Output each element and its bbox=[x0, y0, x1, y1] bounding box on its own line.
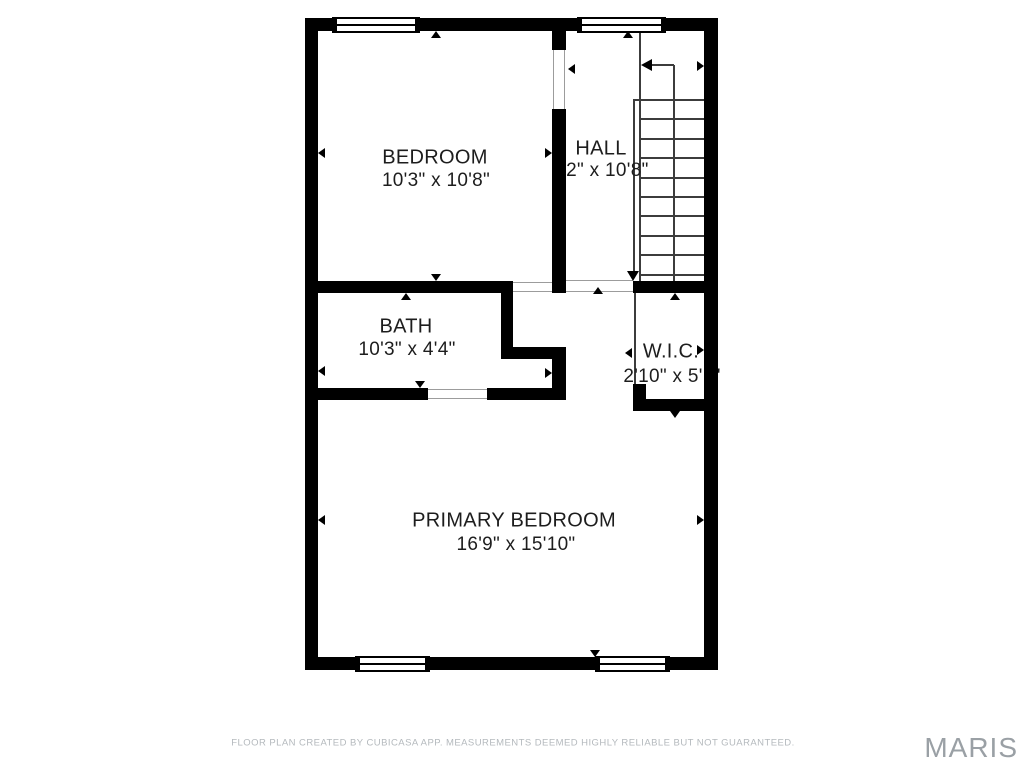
bath-bottom-wall-right bbox=[487, 388, 566, 400]
stair-tread-10 bbox=[640, 274, 704, 276]
room-dims-bedroom: 10'3" x 10'8" bbox=[382, 170, 490, 192]
stair-tread-5 bbox=[640, 177, 704, 179]
closet-door-edge-top bbox=[513, 282, 553, 283]
closet-door-edge-bottom bbox=[513, 291, 553, 292]
tick-bedroom-top bbox=[431, 31, 441, 38]
tick-primary-right bbox=[697, 515, 704, 525]
hall-bedroom-wall-upper bbox=[552, 31, 566, 50]
room-dims-primary-bedroom: 16'9" x 15'10" bbox=[457, 534, 576, 556]
stair-tread-2 bbox=[640, 118, 704, 120]
tick-bath-right bbox=[545, 368, 552, 378]
hall-opening-edge-top bbox=[566, 280, 633, 281]
tick-bath-left bbox=[318, 366, 325, 376]
wic-bottom-wall bbox=[633, 399, 704, 411]
wic-corner-stub bbox=[633, 384, 646, 399]
stair-tread-9 bbox=[640, 254, 704, 256]
tick-corridor-opening bbox=[593, 287, 603, 294]
maris-watermark: MARIS bbox=[924, 732, 1018, 764]
stairs-bottom-wall bbox=[633, 281, 704, 293]
hall-window-pane-line bbox=[582, 24, 661, 26]
tick-bedroom-right bbox=[545, 148, 552, 158]
tick-primary-bottom bbox=[590, 650, 600, 657]
bedroom-window bbox=[332, 17, 420, 33]
stair-tread-3 bbox=[640, 138, 704, 140]
tick-bath-top bbox=[401, 293, 411, 300]
right-wall bbox=[704, 18, 718, 670]
bedroom-bath-wall bbox=[318, 281, 501, 293]
room-label-hall: HALL bbox=[575, 138, 626, 161]
closet-bottom-wall bbox=[501, 347, 566, 359]
stair-walk-line bbox=[673, 65, 675, 281]
left-wall bbox=[305, 18, 318, 670]
tick-bedroom-bottom bbox=[431, 274, 441, 281]
stair-up-arrowhead bbox=[641, 59, 652, 71]
bedroom-door-jamb-right bbox=[564, 50, 565, 109]
stair-tread-7 bbox=[640, 215, 704, 217]
floor-plan-canvas: BEDROOM 10'3" x 10'8" HALL 3'2" x 10'8" … bbox=[0, 0, 1024, 768]
stair-railing-arrowhead bbox=[627, 271, 639, 281]
room-label-bedroom: BEDROOM bbox=[382, 147, 487, 170]
stair-tread-1 bbox=[633, 99, 704, 101]
room-label-wic: W.I.C. bbox=[643, 341, 699, 364]
primary-bedroom-window-right bbox=[595, 656, 670, 672]
primary-bedroom-window-right-pane-line bbox=[600, 663, 665, 665]
bath-door-edge-bottom bbox=[428, 398, 487, 399]
stair-tread-4 bbox=[640, 157, 704, 159]
primary-bedroom-window-left bbox=[355, 656, 430, 672]
tick-wic-left bbox=[625, 348, 632, 358]
bedroom-window-pane-line bbox=[337, 24, 415, 26]
tick-hall-right bbox=[697, 61, 704, 71]
bath-door-edge-top bbox=[428, 389, 487, 390]
stair-arrow-tail bbox=[650, 64, 674, 66]
tick-wic-right bbox=[697, 345, 704, 355]
tick-wic-top bbox=[670, 293, 680, 300]
primary-bedroom-window-left-pane-line bbox=[360, 663, 425, 665]
tick-primary-left bbox=[318, 515, 325, 525]
tick-hall-top bbox=[623, 31, 633, 38]
tick-wic-bottom bbox=[670, 411, 680, 418]
bedroom-door-jamb-left bbox=[553, 50, 554, 109]
hall-window bbox=[577, 17, 666, 33]
stair-tread-8 bbox=[640, 235, 704, 237]
bath-bottom-wall-left bbox=[318, 388, 428, 400]
room-label-primary-bedroom: PRIMARY BEDROOM bbox=[412, 510, 616, 533]
stair-railing-line bbox=[633, 99, 635, 272]
tick-bath-bottom bbox=[415, 381, 425, 388]
footer-disclaimer: FLOOR PLAN CREATED BY CUBICASA APP. MEAS… bbox=[231, 738, 794, 749]
tick-bedroom-left bbox=[318, 148, 325, 158]
room-dims-bath: 10'3" x 4'4" bbox=[358, 339, 455, 361]
room-label-bath: BATH bbox=[379, 316, 432, 339]
tick-hall-left bbox=[568, 64, 575, 74]
hall-bedroom-wall-main bbox=[552, 109, 566, 293]
stair-tread-6 bbox=[640, 196, 704, 198]
